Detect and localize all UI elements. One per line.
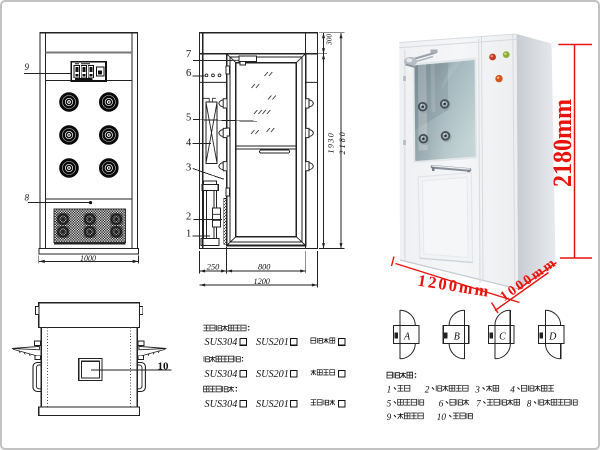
svg-text:SUS201: SUS201 (256, 399, 289, 410)
svg-text:5: 5 (186, 113, 191, 124)
svg-text:2180mm: 2180mm (548, 99, 577, 187)
svg-text:C: C (499, 332, 506, 343)
svg-text:7: 7 (186, 49, 191, 60)
svg-text:300: 300 (325, 34, 334, 47)
svg-text:5: 5 (387, 398, 392, 408)
svg-text:SUS304: SUS304 (205, 337, 238, 348)
svg-text:1: 1 (186, 229, 191, 240)
svg-text:3: 3 (186, 163, 191, 174)
svg-text:9: 9 (25, 62, 30, 72)
svg-text:10: 10 (437, 412, 447, 422)
svg-text:1930: 1930 (327, 132, 336, 154)
svg-text:8: 8 (527, 398, 532, 408)
svg-text:A: A (403, 332, 411, 343)
svg-text:1200: 1200 (254, 277, 270, 286)
svg-text:250: 250 (207, 263, 220, 272)
svg-text:D: D (548, 332, 557, 343)
svg-text:6: 6 (186, 68, 191, 79)
svg-text:6: 6 (439, 398, 444, 408)
svg-text:SUS304: SUS304 (205, 369, 238, 380)
svg-text:B: B (454, 332, 460, 343)
svg-text:2: 2 (186, 211, 191, 222)
svg-text:1000: 1000 (80, 254, 96, 263)
svg-text:2180: 2180 (338, 130, 347, 154)
svg-text:SUS201: SUS201 (256, 369, 289, 380)
svg-text:4: 4 (510, 384, 515, 394)
svg-text:8: 8 (25, 193, 30, 203)
svg-text:10: 10 (158, 361, 170, 373)
svg-text:800: 800 (258, 263, 271, 272)
svg-text:3: 3 (474, 384, 480, 394)
svg-text:1: 1 (387, 384, 392, 394)
svg-text:SUS304: SUS304 (205, 399, 238, 410)
svg-text:9: 9 (387, 412, 392, 422)
svg-text:SUS201: SUS201 (256, 337, 289, 348)
svg-text:2: 2 (425, 384, 430, 394)
svg-text:4: 4 (186, 138, 192, 149)
svg-text:7: 7 (476, 398, 481, 408)
